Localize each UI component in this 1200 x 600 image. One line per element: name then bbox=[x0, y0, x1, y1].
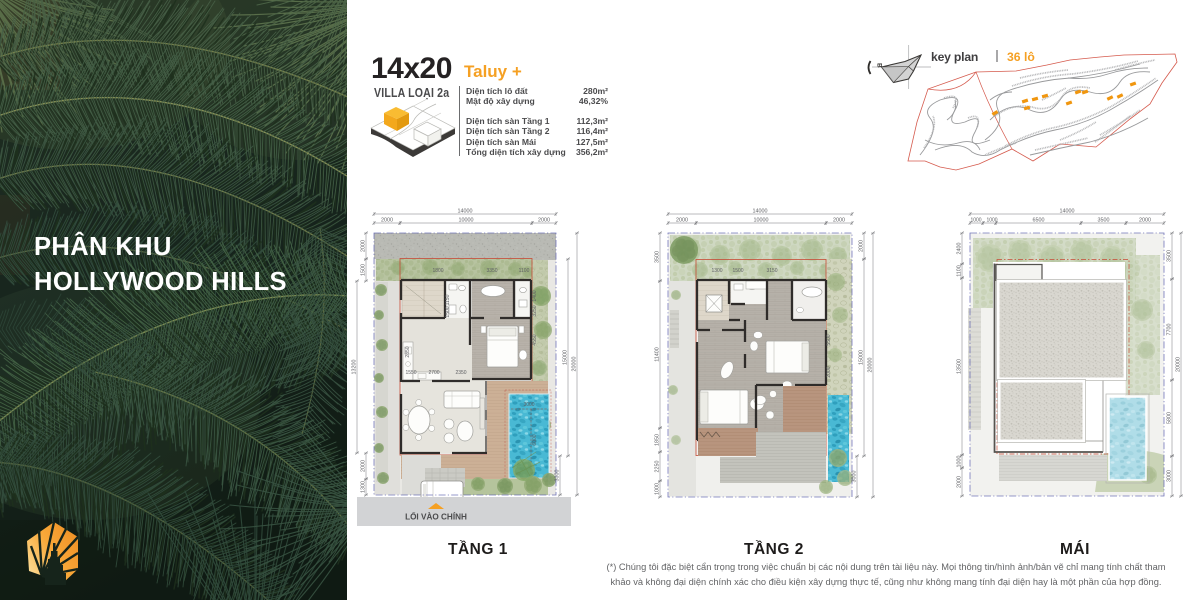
svg-text:2350: 2350 bbox=[455, 370, 466, 376]
svg-text:2000: 2000 bbox=[826, 366, 832, 377]
svg-text:20000: 20000 bbox=[572, 357, 578, 372]
svg-text:13500: 13500 bbox=[957, 359, 963, 374]
svg-text:2000: 2000 bbox=[859, 240, 865, 252]
svg-text:1100: 1100 bbox=[519, 268, 530, 274]
svg-text:3250: 3250 bbox=[532, 305, 538, 316]
svg-text:1150: 1150 bbox=[445, 294, 451, 305]
svg-text:1500: 1500 bbox=[732, 268, 743, 274]
svg-text:3000: 3000 bbox=[1167, 470, 1173, 482]
svg-text:2400: 2400 bbox=[957, 243, 963, 255]
svg-text:3000: 3000 bbox=[523, 402, 534, 408]
svg-text:4550: 4550 bbox=[532, 334, 538, 345]
svg-text:key plan: key plan bbox=[931, 50, 978, 64]
svg-text:2000: 2000 bbox=[957, 476, 963, 488]
svg-text:36 lô: 36 lô bbox=[1007, 50, 1035, 64]
svg-text:2250: 2250 bbox=[655, 461, 661, 473]
svg-text:2000: 2000 bbox=[1139, 218, 1151, 224]
svg-text:2000: 2000 bbox=[538, 218, 550, 224]
svg-text:1300: 1300 bbox=[361, 481, 367, 493]
svg-text:1400: 1400 bbox=[532, 290, 538, 301]
svg-text:6000: 6000 bbox=[532, 434, 538, 445]
svg-text:3000: 3000 bbox=[852, 471, 858, 483]
svg-text:5800: 5800 bbox=[1167, 412, 1173, 424]
svg-text:11400: 11400 bbox=[655, 347, 661, 362]
svg-text:1800: 1800 bbox=[432, 268, 443, 274]
svg-text:15000: 15000 bbox=[859, 350, 865, 365]
svg-text:1000: 1000 bbox=[970, 218, 981, 224]
svg-text:1550: 1550 bbox=[405, 370, 416, 376]
svg-text:3500: 3500 bbox=[1167, 250, 1173, 262]
svg-text:1300: 1300 bbox=[711, 268, 722, 274]
svg-text:14000: 14000 bbox=[753, 209, 768, 215]
svg-text:2000: 2000 bbox=[381, 218, 393, 224]
svg-text:2850: 2850 bbox=[405, 346, 411, 357]
svg-text:1100: 1100 bbox=[957, 265, 963, 277]
svg-text:10000: 10000 bbox=[459, 218, 474, 224]
svg-text:3150: 3150 bbox=[766, 268, 777, 274]
svg-text:1000: 1000 bbox=[986, 218, 997, 224]
svg-text:3000: 3000 bbox=[555, 470, 561, 482]
svg-text:13200: 13200 bbox=[352, 360, 358, 375]
svg-text:7700: 7700 bbox=[1167, 324, 1173, 336]
svg-text:14000: 14000 bbox=[1060, 209, 1075, 215]
svg-text:5500: 5500 bbox=[826, 334, 832, 345]
svg-text:20000: 20000 bbox=[1176, 357, 1182, 372]
svg-text:15000: 15000 bbox=[563, 350, 569, 365]
svg-text:LỐI VÀO CHÍNH: LỐI VÀO CHÍNH bbox=[405, 511, 467, 522]
svg-text:2000: 2000 bbox=[361, 240, 367, 252]
svg-text:2000: 2000 bbox=[361, 460, 367, 472]
svg-text:2000: 2000 bbox=[833, 218, 845, 224]
svg-text:6500: 6500 bbox=[1033, 218, 1045, 224]
svg-text:2700: 2700 bbox=[428, 370, 439, 376]
svg-text:3500: 3500 bbox=[1098, 218, 1110, 224]
svg-text:3350: 3350 bbox=[486, 268, 497, 274]
svg-text:14000: 14000 bbox=[458, 209, 473, 215]
svg-text:1500: 1500 bbox=[445, 306, 451, 317]
svg-text:3500: 3500 bbox=[655, 251, 661, 263]
svg-text:1500: 1500 bbox=[361, 264, 367, 276]
svg-text:1000: 1000 bbox=[957, 456, 963, 468]
svg-text:20000: 20000 bbox=[868, 358, 874, 373]
svg-text:2000: 2000 bbox=[676, 218, 688, 224]
svg-text:1000: 1000 bbox=[655, 483, 661, 495]
svg-text:1850: 1850 bbox=[655, 434, 661, 446]
svg-text:10000: 10000 bbox=[754, 218, 769, 224]
